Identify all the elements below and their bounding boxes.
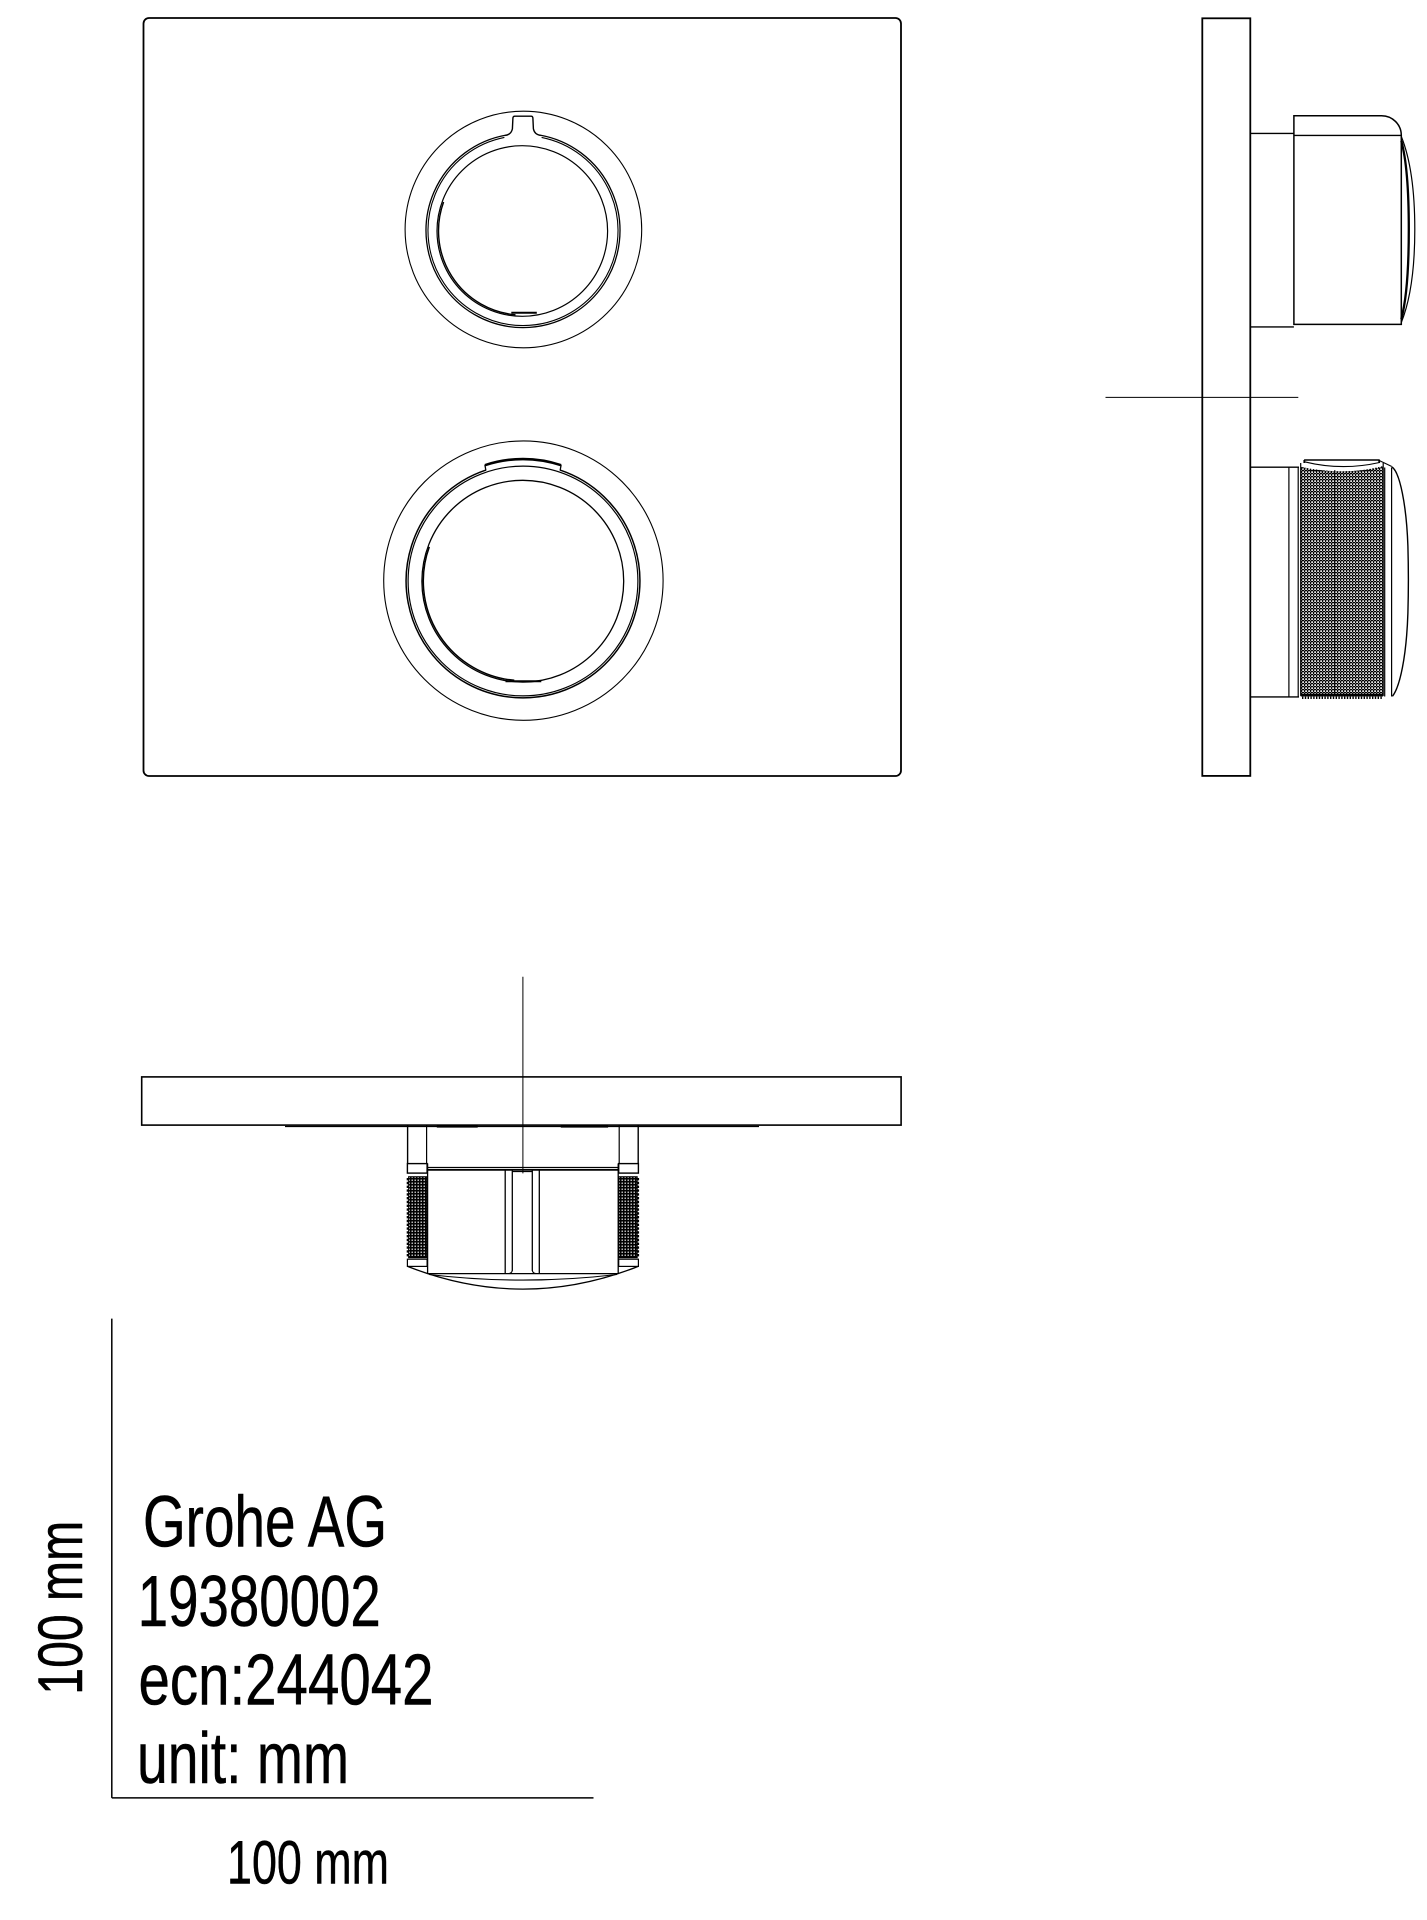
svg-text:ecn:244042: ecn:244042 — [139, 1641, 434, 1721]
svg-text:19380002: 19380002 — [138, 1562, 381, 1642]
svg-text:Grohe AG: Grohe AG — [143, 1482, 387, 1562]
svg-text:100 mm: 100 mm — [26, 1521, 96, 1695]
svg-text:100 mm: 100 mm — [227, 1829, 389, 1898]
svg-text:unit: mm: unit: mm — [137, 1719, 349, 1799]
